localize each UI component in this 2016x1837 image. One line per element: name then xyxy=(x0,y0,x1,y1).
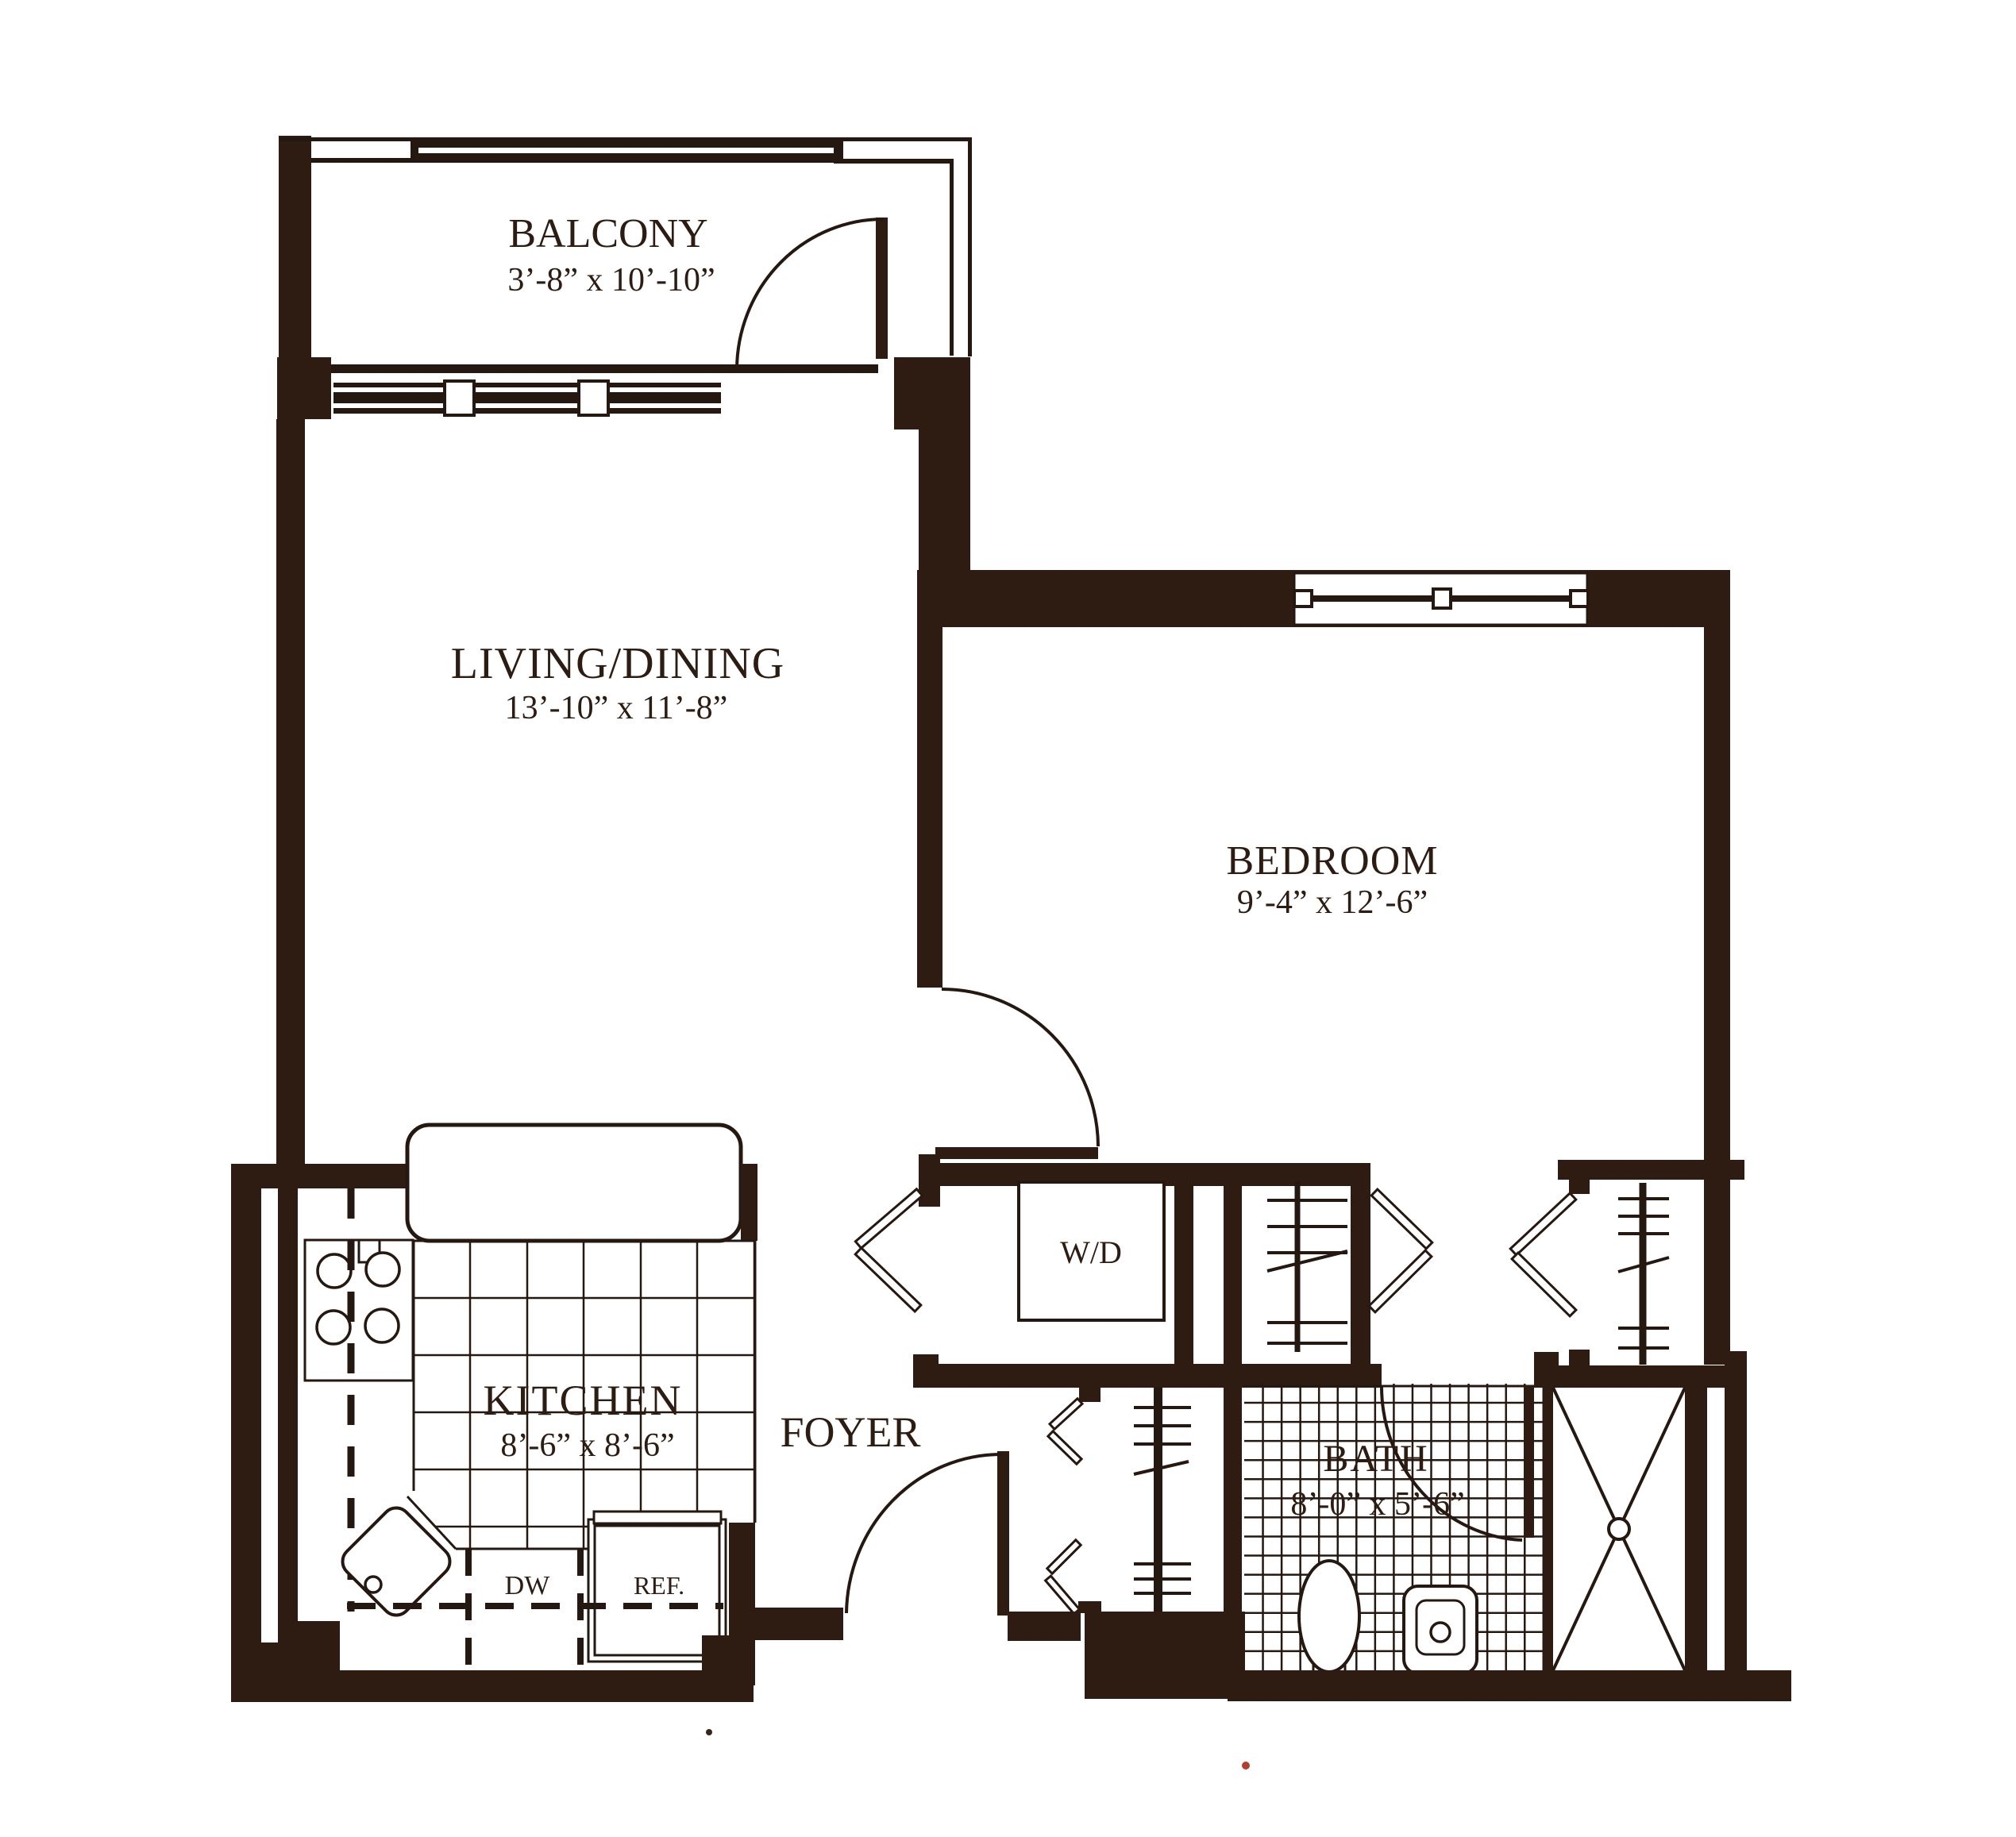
svg-text:8’-6” x 8’-6”: 8’-6” x 8’-6” xyxy=(500,1427,674,1464)
svg-text:13’-10” x 11’-8”: 13’-10” x 11’-8” xyxy=(505,690,728,726)
svg-text:BALCONY: BALCONY xyxy=(508,211,707,256)
svg-text:REF.: REF. xyxy=(634,1571,684,1600)
svg-text:DW: DW xyxy=(505,1571,551,1600)
svg-text:BEDROOM: BEDROOM xyxy=(1226,838,1438,884)
svg-text:KITCHEN: KITCHEN xyxy=(484,1377,683,1424)
svg-text:8’-0” x 5’-6”: 8’-0” x 5’-6” xyxy=(1290,1486,1464,1523)
svg-text:W/D: W/D xyxy=(1060,1234,1122,1270)
svg-text:3’-8” x 10’-10”: 3’-8” x 10’-10” xyxy=(507,262,715,298)
svg-text:9’-4” x 12’-6”: 9’-4” x 12’-6” xyxy=(1237,884,1428,921)
svg-text:FOYER: FOYER xyxy=(780,1408,920,1456)
svg-text:LIVING/DINING: LIVING/DINING xyxy=(451,639,784,688)
svg-text:BATH: BATH xyxy=(1323,1438,1428,1480)
